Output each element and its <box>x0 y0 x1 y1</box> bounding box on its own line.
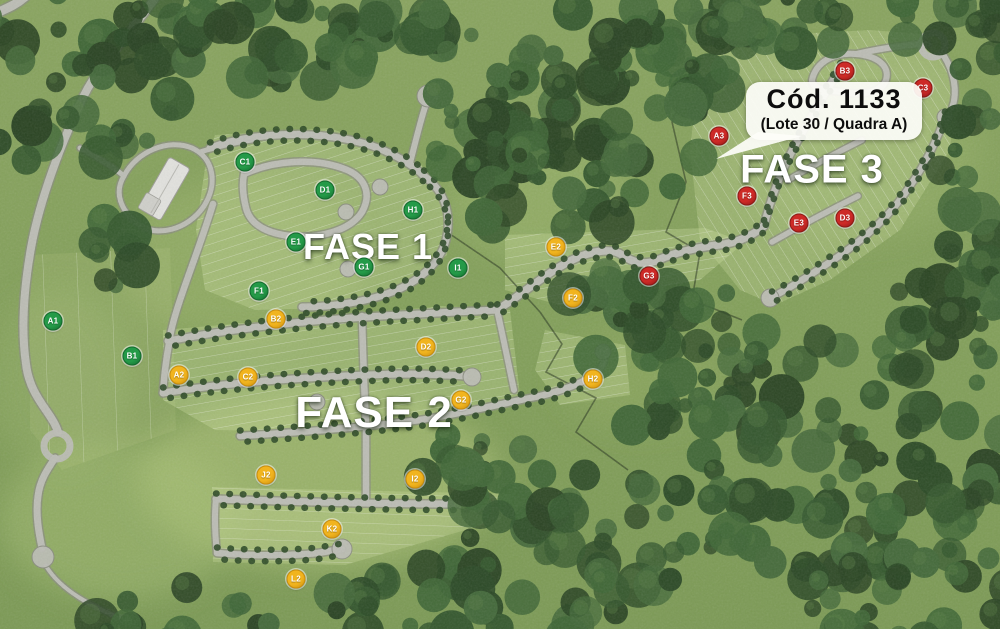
callout-code: Cód. 1133 <box>750 85 918 115</box>
quadra-marker-h1: H1 <box>404 201 423 220</box>
quadra-marker-c1: C1 <box>236 153 255 172</box>
quadra-marker-b3: B3 <box>836 62 855 81</box>
phase-label-fase-2: FASE 2 <box>295 388 453 438</box>
masterplan-screenshot: FASE 1FASE 2FASE 3 A1B1C1D1E1F1G1H1I1A2B… <box>0 0 1000 629</box>
quadra-marker-d3: D3 <box>836 209 855 228</box>
quadra-marker-d1: D1 <box>316 181 335 200</box>
quadra-marker-b2: B2 <box>267 310 286 329</box>
quadra-marker-d2: D2 <box>417 338 436 357</box>
quadra-marker-e3: E3 <box>790 214 809 233</box>
quadra-marker-f1: F1 <box>250 282 269 301</box>
callout-subtitle: (Lote 30 / Quadra A) <box>750 116 918 133</box>
quadra-marker-e1: E1 <box>287 233 306 252</box>
quadra-marker-b1: B1 <box>123 347 142 366</box>
quadra-marker-a2: A2 <box>170 366 189 385</box>
quadra-marker-h2: H2 <box>584 370 603 389</box>
lot-info-callout: Cód. 1133 (Lote 30 / Quadra A) <box>746 82 922 140</box>
quadra-marker-c2: C2 <box>239 368 258 387</box>
quadra-marker-l2: L2 <box>287 570 306 589</box>
quadra-marker-e2: E2 <box>547 238 566 257</box>
quadra-marker-j2: J2 <box>257 466 276 485</box>
quadra-marker-f2: F2 <box>564 289 583 308</box>
quadra-marker-g1: G1 <box>355 258 374 277</box>
quadra-marker-g3: G3 <box>640 267 659 286</box>
quadra-marker-k2: K2 <box>323 520 342 539</box>
quadra-marker-f3: F3 <box>738 187 757 206</box>
quadra-marker-g2: G2 <box>452 391 471 410</box>
quadra-marker-a1: A1 <box>44 312 63 331</box>
quadra-marker-i1: I1 <box>449 259 468 278</box>
quadra-marker-i2: I2 <box>406 470 425 489</box>
